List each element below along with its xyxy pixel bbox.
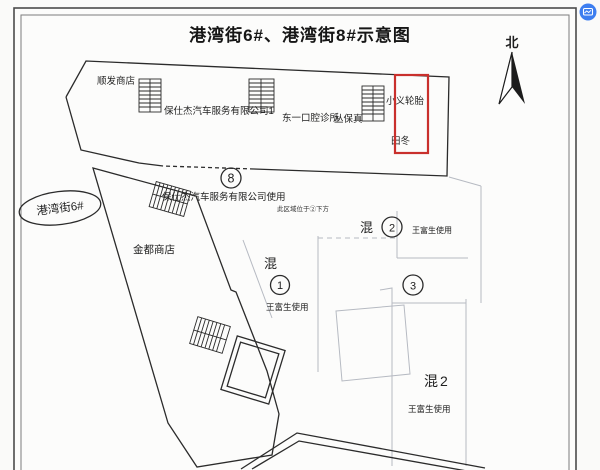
unit-1-type: 混 bbox=[264, 256, 277, 271]
shop-label-congbaozhen: 丛保真 bbox=[334, 113, 363, 125]
unit-1-user: 王富生使用 bbox=[266, 302, 309, 312]
browser-overlay-icon[interactable] bbox=[580, 4, 597, 21]
shop-label-jindu: 金都商店 bbox=[133, 243, 175, 256]
unit-2-user: 王富生使用 bbox=[412, 225, 452, 235]
unit-1-badge: 1 bbox=[277, 280, 283, 292]
unit-4-type: 混2 bbox=[424, 373, 450, 389]
unit-3-badge: 3 bbox=[410, 281, 416, 293]
zone-8-note: 此区域位于②下方 bbox=[277, 204, 330, 213]
scanned-site-plan: 港湾街6#、港湾街8#示意图 北 顺发商店 保仕杰汽车服务有限公 bbox=[0, 0, 600, 470]
unit-2-badge: 2 bbox=[389, 223, 395, 235]
north-label: 北 bbox=[505, 35, 518, 50]
shop-label-baoshijie: 保仕杰汽车服务有限公司1 bbox=[164, 105, 274, 117]
shop-label-shunfa: 顺发商店 bbox=[97, 75, 135, 87]
shop-label-tires: 小义轮胎 bbox=[386, 95, 425, 107]
zone-8-badge: 8 bbox=[228, 172, 235, 186]
unit-2-type: 混 bbox=[360, 220, 373, 235]
unit-4-user: 王富生使用 bbox=[408, 404, 451, 414]
shop-label-dental: 东一口腔诊所 bbox=[282, 112, 340, 124]
page-title: 港湾街6#、港湾街8#示意图 bbox=[189, 25, 411, 45]
